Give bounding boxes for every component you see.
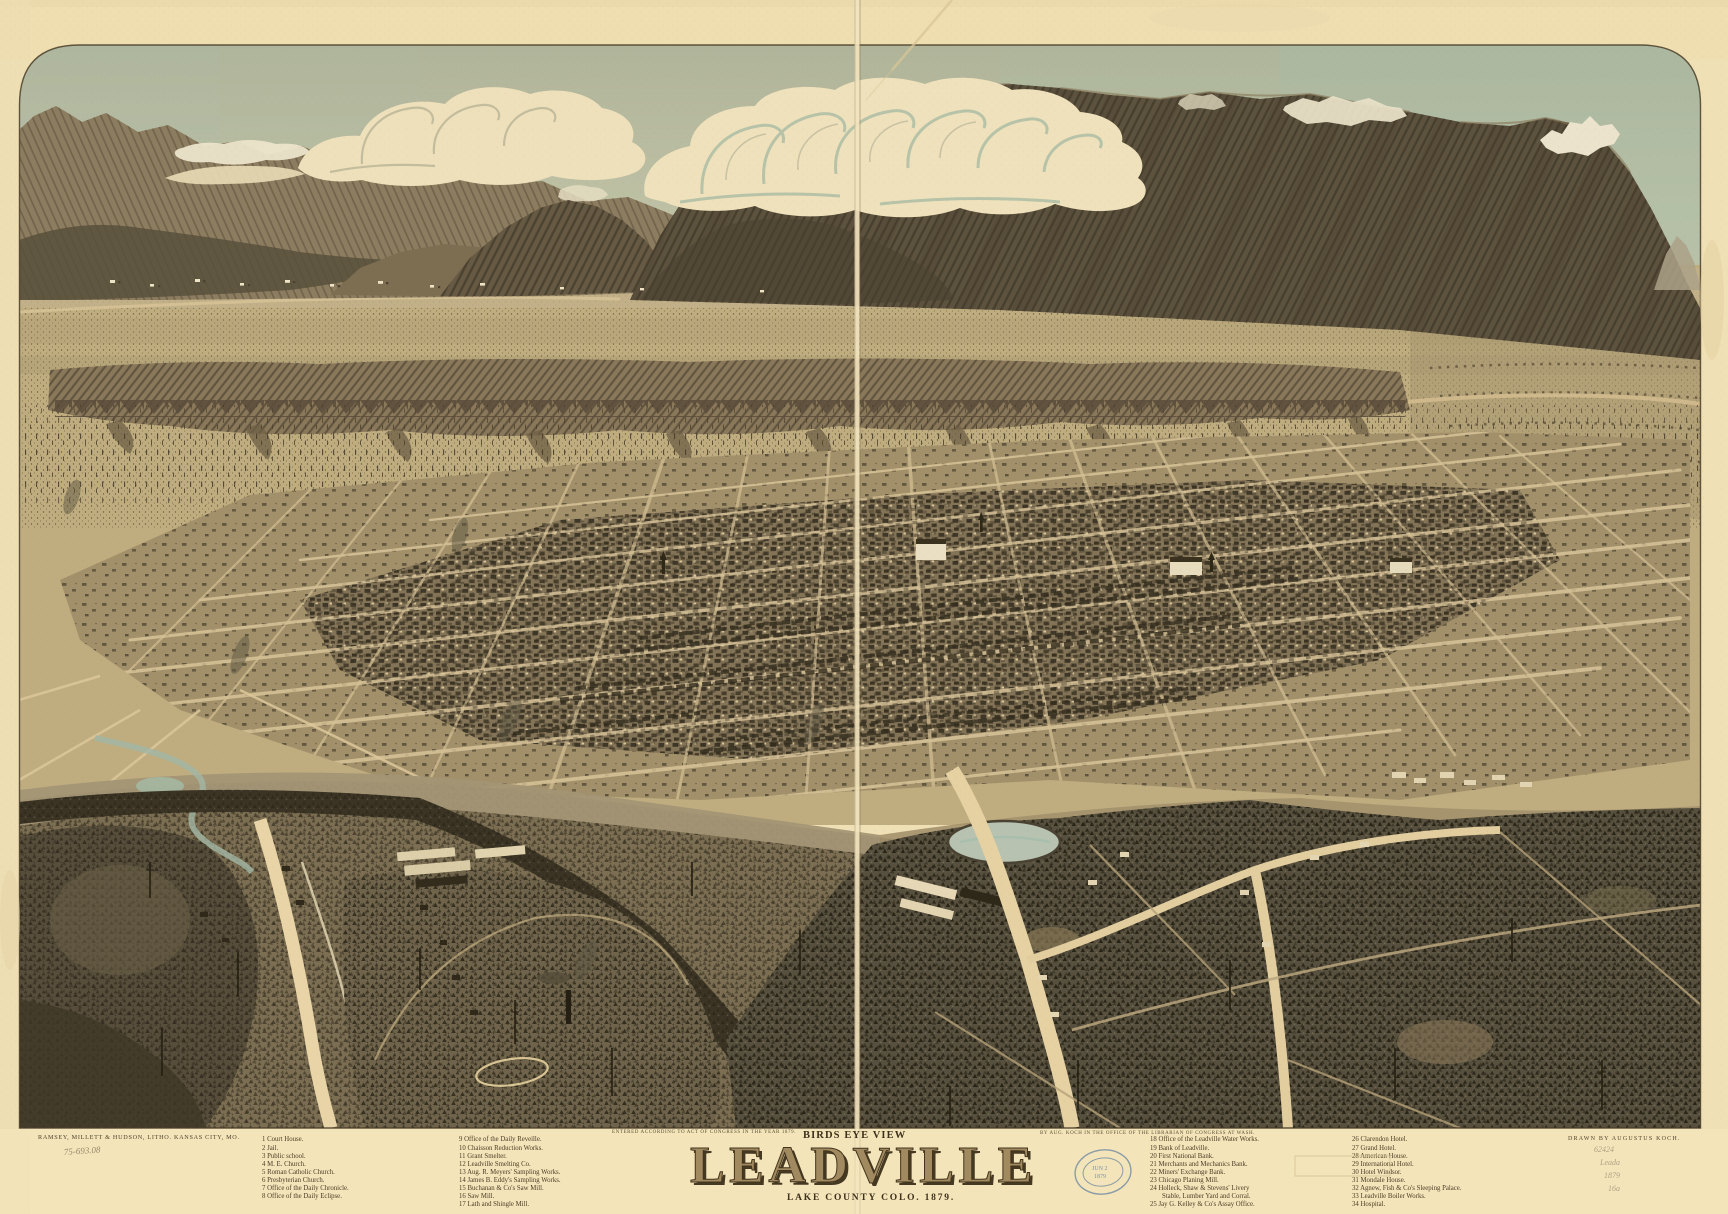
svg-text:22 Miners' Exchange Bank.: 22 Miners' Exchange Bank. bbox=[1150, 1169, 1226, 1176]
svg-text:11 Grant Smelter.: 11 Grant Smelter. bbox=[459, 1153, 507, 1160]
svg-text:3 Public school.: 3 Public school. bbox=[262, 1153, 306, 1160]
svg-text:10 Chaisson Reduction Works.: 10 Chaisson Reduction Works. bbox=[459, 1145, 543, 1152]
svg-text:23 Chicago Planing Mill.: 23 Chicago Planing Mill. bbox=[1150, 1177, 1219, 1184]
svg-text:17 Lath and Shingle Mill.: 17 Lath and Shingle Mill. bbox=[459, 1201, 529, 1208]
svg-text:30 Hotel Windsor.: 30 Hotel Windsor. bbox=[1352, 1169, 1402, 1176]
svg-text:ENTERED ACCORDING TO ACT OF CO: ENTERED ACCORDING TO ACT OF CONGRESS IN … bbox=[612, 1130, 796, 1135]
svg-text:14 James B. Eddy's Sampling Wo: 14 James B. Eddy's Sampling Works. bbox=[459, 1177, 561, 1184]
svg-text:Stable, Lumber Yard and Corral: Stable, Lumber Yard and Corral. bbox=[1162, 1193, 1251, 1200]
svg-text:1 Court House.: 1 Court House. bbox=[262, 1136, 304, 1143]
svg-text:15 Buchanan & Co's Saw Mill.: 15 Buchanan & Co's Saw Mill. bbox=[459, 1185, 544, 1192]
svg-text:4 M. E. Church.: 4 M. E. Church. bbox=[262, 1161, 306, 1168]
svg-text:25 Jay G. Kelley & Co's Assay: 25 Jay G. Kelley & Co's Assay Office. bbox=[1150, 1201, 1255, 1208]
svg-text:21 Merchants and Mechanics Ban: 21 Merchants and Mechanics Bank. bbox=[1150, 1161, 1248, 1168]
svg-text:32 Agnew, Fish & Co's Sleeping: 32 Agnew, Fish & Co's Sleeping Palace. bbox=[1352, 1185, 1462, 1192]
svg-text:9 Office of the Daily Reveill: 9 Office of the Daily Reveille. bbox=[459, 1136, 542, 1143]
svg-text:20 First National Bank.: 20 First National Bank. bbox=[1150, 1153, 1214, 1160]
svg-text:27 Grand Hotel.: 27 Grand Hotel. bbox=[1352, 1145, 1396, 1152]
svg-text:2 Jail.: 2 Jail. bbox=[262, 1145, 279, 1152]
svg-text:29 International Hotel.: 29 International Hotel. bbox=[1352, 1161, 1414, 1168]
svg-text:8 Office of the Daily Eclipse: 8 Office of the Daily Eclipse. bbox=[262, 1193, 342, 1200]
svg-text:Leada: Leada bbox=[1599, 1158, 1620, 1167]
svg-text:DRAWN BY AUGUSTUS KOCH.: DRAWN BY AUGUSTUS KOCH. bbox=[1568, 1136, 1681, 1142]
svg-text:16a: 16a bbox=[1608, 1184, 1620, 1193]
svg-text:24 Holleck, Shaw & Stevens' Li: 24 Holleck, Shaw & Stevens' Livery bbox=[1150, 1185, 1250, 1192]
svg-text:16 Saw Mill.: 16 Saw Mill. bbox=[459, 1193, 495, 1200]
svg-text:1879: 1879 bbox=[1604, 1171, 1620, 1180]
svg-text:1879: 1879 bbox=[1094, 1174, 1106, 1180]
svg-text:7 Office of the Daily Chronic: 7 Office of the Daily Chronicle. bbox=[262, 1185, 349, 1192]
svg-text:34 Hospital.: 34 Hospital. bbox=[1352, 1201, 1386, 1208]
svg-text:LEADVILLE: LEADVILLE bbox=[690, 1137, 1037, 1194]
svg-text:18 Office of the Leadville Wat: 18 Office of the Leadville Water Works. bbox=[1150, 1136, 1259, 1143]
svg-text:5 Roman Catholic Church.: 5 Roman Catholic Church. bbox=[262, 1169, 335, 1176]
svg-text:13 Aug. R. Meyers' Sampling Wo: 13 Aug. R. Meyers' Sampling Works. bbox=[459, 1169, 561, 1176]
svg-text:26 Clarendon Hotel.: 26 Clarendon Hotel. bbox=[1352, 1136, 1408, 1143]
svg-text:31 Mondale House.: 31 Mondale House. bbox=[1352, 1177, 1406, 1184]
svg-text:33 Leadville Boiler Works.: 33 Leadville Boiler Works. bbox=[1352, 1193, 1426, 1200]
svg-text:19 Bank of Leadville.: 19 Bank of Leadville. bbox=[1150, 1145, 1210, 1152]
svg-text:JUN 2: JUN 2 bbox=[1092, 1166, 1108, 1172]
svg-text:6 Presbyterian Church.: 6 Presbyterian Church. bbox=[262, 1177, 325, 1184]
svg-text:RAMSEY, MILLETT & HUDSON, LITH: RAMSEY, MILLETT & HUDSON, LITHO. KANSAS … bbox=[38, 1134, 240, 1141]
svg-text:12 Leadville Smelting Co.: 12 Leadville Smelting Co. bbox=[459, 1161, 531, 1168]
svg-text:62424: 62424 bbox=[1594, 1145, 1614, 1154]
svg-text:LAKE COUNTY COLO. 1879.: LAKE COUNTY COLO. 1879. bbox=[787, 1193, 955, 1203]
